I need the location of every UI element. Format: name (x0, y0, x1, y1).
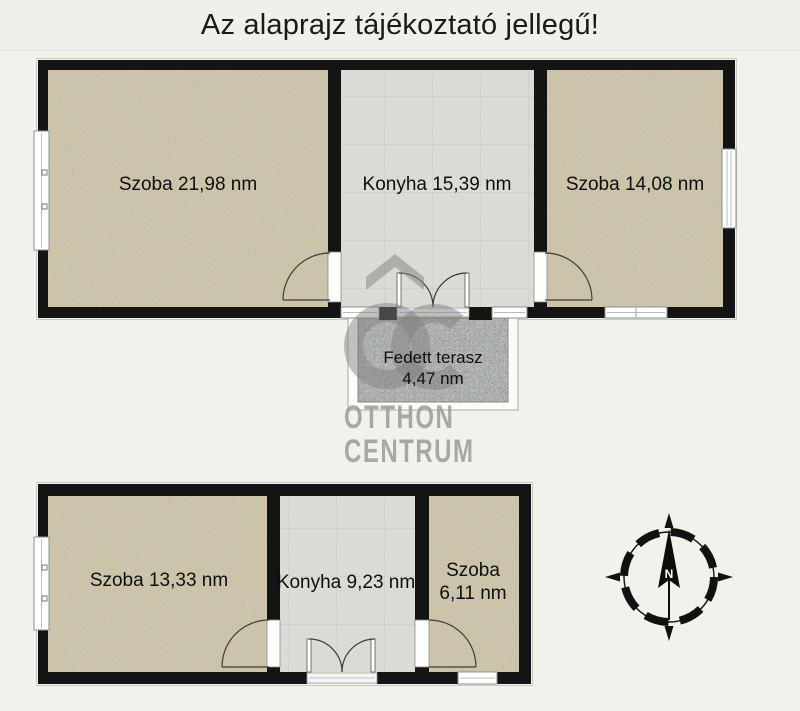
glazing-terrace-right (492, 307, 527, 318)
watermark-brand-line1: OTTHON (344, 399, 454, 436)
terrace-label: Fedett terasz 4,47 nm (363, 347, 503, 389)
window-lower-bottom (458, 672, 497, 684)
room-label-lower-left: Szoba 13,33 nm (90, 570, 228, 592)
room-name: Szoba (446, 560, 500, 581)
terrace-name: Fedett terasz (383, 348, 482, 367)
room-label-upper-left: Szoba 21,98 nm (119, 174, 257, 196)
compass-tick-east (718, 573, 733, 582)
compass-tick-north (665, 513, 674, 528)
window-upper-right (722, 149, 736, 228)
watermark-brand-line2: CENTRUM (344, 433, 474, 470)
room-label-upper-right: Szoba 14,08 nm (566, 174, 704, 196)
floorplan-image: Az alaprajz tájékoztató jellegű! (0, 0, 800, 711)
window-upper-bottom (605, 307, 667, 318)
compass-tick-west (605, 573, 620, 582)
compass-tick-south (665, 626, 674, 641)
north-compass: N (605, 513, 733, 641)
room-label-lower-right: Szoba 6,11 nm (413, 559, 533, 605)
window-upper-left (34, 131, 49, 250)
window-lower-left (34, 537, 49, 630)
room-label-lower-kitchen: Konyha 9,23 nm (277, 572, 415, 594)
compass-north-label: N (665, 567, 674, 581)
room-area: 6,11 nm (439, 583, 506, 604)
terrace-area: 4,47 nm (402, 369, 463, 388)
room-label-upper-kitchen: Konyha 15,39 nm (363, 174, 512, 196)
